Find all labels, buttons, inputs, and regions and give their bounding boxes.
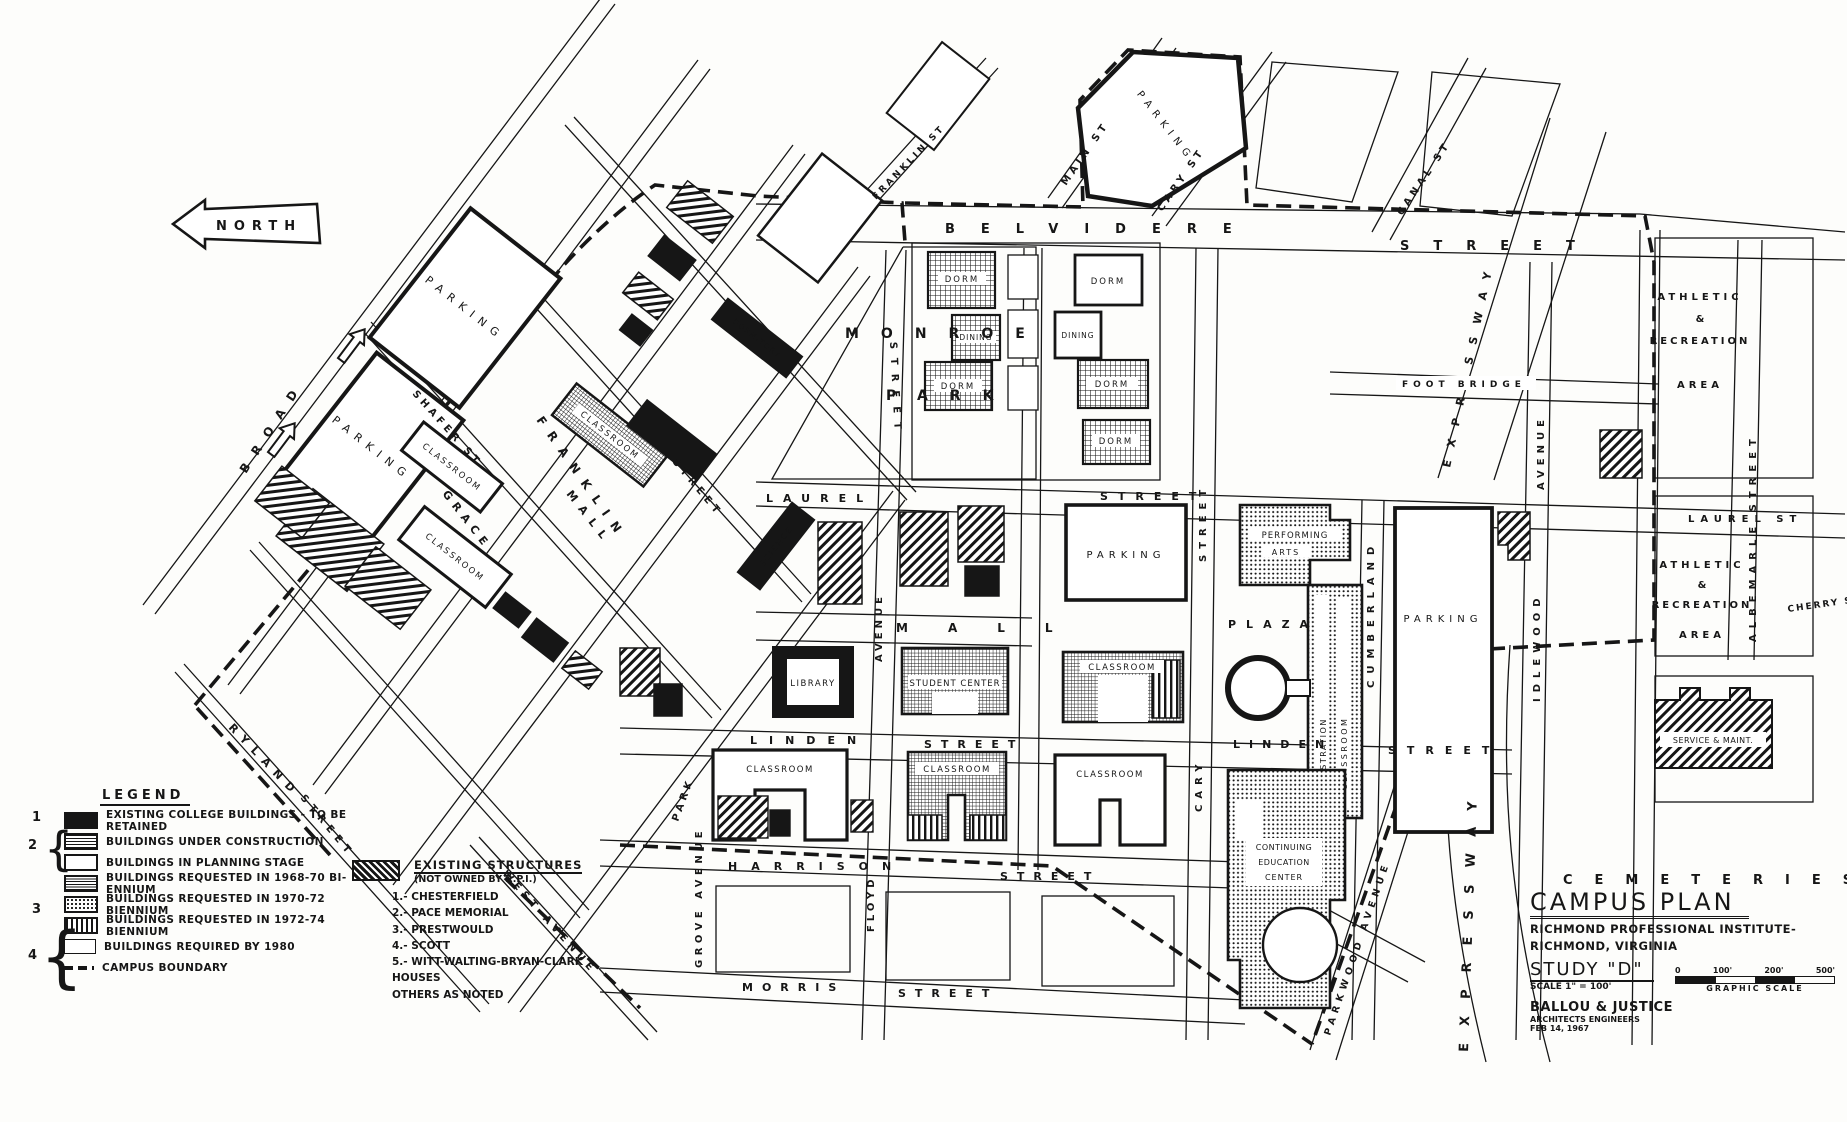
- note-heading: EXISTING STRUCTURES: [414, 858, 582, 874]
- note-item: OTHERS AS NOTED: [392, 987, 612, 1003]
- city-name: RICHMOND, VIRGINIA: [1530, 939, 1842, 953]
- legend-swatch-1970-72: [64, 896, 98, 913]
- classroom-harrison-west: CLASSROOM: [713, 750, 873, 840]
- chesterfield-building: [1498, 512, 1530, 560]
- area-label-plaza: PLAZA: [1228, 618, 1318, 631]
- foot-bridge-label: FOOT BRIDGE: [1396, 376, 1536, 390]
- building-label: DORM: [1099, 437, 1133, 447]
- legend-item: BUILDINGS REQUIRED BY 1980: [64, 936, 360, 957]
- graphic-scale-label: GRAPHIC SCALE: [1675, 984, 1835, 993]
- note-item: 2.- PACE MEMORIAL: [392, 905, 612, 921]
- legend-group-number: 4: [28, 948, 37, 963]
- building-label: CLASSROOM: [1088, 663, 1156, 673]
- street-label: STREET: [1100, 490, 1206, 503]
- area-label-park: PARK: [886, 388, 1015, 404]
- legend-item: EXISTING COLLEGE BUILDINGS - TO BE RETAI…: [64, 810, 360, 831]
- legend-item: BUILDINGS IN PLANNING STAGE: [64, 852, 360, 873]
- street-label: BELVIDERE: [945, 222, 1258, 237]
- street-label: MALL: [896, 621, 1093, 635]
- building-label: CENTER: [1265, 873, 1303, 882]
- performing-arts-building: PERFORMING ARTS: [1240, 505, 1350, 585]
- street-label: CUMBERLAND: [1366, 540, 1377, 688]
- legend-heading: LEGEND: [100, 788, 190, 806]
- plaza-circle: [1228, 658, 1310, 718]
- svg-text:RECREATION: RECREATION: [1650, 336, 1751, 347]
- building-label: EDUCATION: [1258, 858, 1310, 867]
- street-label: GROVE AVENUE: [694, 827, 705, 968]
- svg-text:&: &: [1696, 314, 1705, 325]
- building-label: PARKING: [1404, 614, 1483, 625]
- street-label: EXPRESSWAY: [1440, 258, 1497, 469]
- street-label: STREET: [1388, 744, 1500, 757]
- campus-plan-map: PARKING PARKING CLASSROOM CLASSROOM CLAS…: [0, 0, 1847, 1122]
- svg-text:ATHLETIC: ATHLETIC: [1659, 560, 1744, 571]
- street-label: IDLEWOOD: [1532, 592, 1543, 702]
- legend-swatch-1968-70: [64, 875, 98, 892]
- existing-structures-note: EXISTING STRUCTURES (NOT OWNED BY R.P.I.…: [352, 858, 612, 1003]
- legend-item: BUILDINGS UNDER CONSTRUCTION: [64, 831, 360, 852]
- building-label: CONTINUING: [1256, 843, 1313, 852]
- street-label: LINDEN: [1233, 738, 1333, 751]
- street-label: FLOYD: [866, 875, 877, 932]
- architect-firm: BALLOU & JUSTICE: [1530, 1000, 1842, 1015]
- legend-item: BUILDINGS REQUESTED IN 1972-74 BIENNIUM: [64, 915, 360, 936]
- svg-text:ATHLETIC: ATHLETIC: [1657, 292, 1742, 303]
- plan-title: CAMPUS PLAN: [1530, 888, 1749, 919]
- street-label: STREET: [1198, 484, 1209, 562]
- street-label: LINDEN: [750, 734, 868, 747]
- street-label: CHERRY ST: [1787, 595, 1847, 615]
- street-label: PARK: [670, 776, 696, 823]
- north-arrow: NORTH: [173, 200, 320, 248]
- building-label: CLASSROOM: [746, 765, 814, 775]
- building-label: PERFORMING: [1262, 531, 1329, 541]
- title-block: CAMPUS PLAN RICHMOND PROFESSIONAL INSTIT…: [1530, 888, 1842, 1033]
- science-building: SCIENCE: [736, 501, 815, 590]
- street-label: STREET: [1400, 239, 1599, 254]
- building-label: DORM: [1091, 277, 1125, 287]
- street-label: AVENUE: [874, 593, 885, 662]
- scale-bar: [1675, 976, 1835, 984]
- area-label-cemeteries: CEMETERIES: [1563, 873, 1847, 888]
- legend: LEGEND 1 2 3 4 { { EXISTING COLLEGE BUIL…: [30, 788, 360, 978]
- legend-item: BUILDINGS REQUESTED IN 1970-72 BIENNIUM: [64, 894, 360, 915]
- plan-date: FEB 14, 1967: [1530, 1024, 1842, 1033]
- building-label: DORM: [945, 275, 979, 285]
- svg-text:AREA: AREA: [1679, 630, 1725, 641]
- svg-text:RECREATION: RECREATION: [1652, 600, 1753, 611]
- street-label: STREET: [1000, 870, 1100, 883]
- legend-group-number: 2: [28, 838, 37, 853]
- street-label: CARY: [1194, 759, 1205, 812]
- classroom-center-north: CLASSROOM: [1063, 652, 1183, 722]
- continuing-education-center: CONTINUING EDUCATION CENTER: [1228, 770, 1345, 1008]
- hatch-swatch: [352, 860, 400, 881]
- area-label-monroe: MONROE: [845, 326, 1047, 342]
- note-item: 1.- CHESTERFIELD: [392, 889, 612, 905]
- note-subheading: (NOT OWNED BY R.P.I.): [414, 874, 612, 885]
- building-label: DINING: [1061, 331, 1094, 340]
- note-item: 3.- PRESTWOULD: [392, 922, 612, 938]
- street-label: LAUREL: [766, 492, 873, 505]
- street-label: MORRIS: [742, 981, 845, 994]
- dormitory-building: DORMITORY: [711, 297, 804, 378]
- building-label: DORM: [1095, 380, 1129, 390]
- street-label: AVENUE: [1536, 415, 1547, 490]
- building-label: CLASSROOM: [1076, 770, 1144, 780]
- student-center-building: STUDENT CENTER: [902, 648, 1008, 714]
- street-label: LAUREL ST: [1688, 514, 1802, 525]
- street-label: STREET: [898, 987, 998, 1000]
- service-maintenance-building: SERVICE & MAINT.: [1655, 688, 1772, 768]
- institute-name: RICHMOND PROFESSIONAL INSTITUTE-: [1530, 922, 1842, 936]
- architect-firm-sub: ARCHITECTS ENGINEERS: [1530, 1015, 1842, 1024]
- svg-text:&: &: [1698, 580, 1707, 591]
- north-arrow-label: NORTH: [216, 219, 302, 234]
- building-label: CLASSROOM: [923, 765, 991, 775]
- note-item: 5.- WITT-WALTING-BRYAN-CLARK HOUSES: [392, 954, 612, 987]
- building-label: ARTS: [1272, 548, 1300, 557]
- building-label: PARKING: [1087, 550, 1166, 561]
- street-label: STREET: [924, 738, 1024, 751]
- graphic-scale: 0 100' 200' 500' GRAPHIC SCALE: [1675, 966, 1835, 993]
- legend-group-number: 3: [32, 902, 41, 917]
- classroom-harrison-center: CLASSROOM: [908, 752, 1006, 840]
- parking-center: PARKING: [1066, 505, 1186, 600]
- legend-item: CAMPUS BOUNDARY: [64, 957, 360, 978]
- parking-east: PARKING: [1395, 508, 1492, 832]
- note-item: 4.- SCOTT: [392, 938, 612, 954]
- building-label: STUDENT CENTER: [909, 679, 1000, 689]
- svg-text:AREA: AREA: [1677, 380, 1723, 391]
- classroom-harrison-east: CLASSROOM: [1055, 755, 1165, 845]
- library-building: LIBRARY: [772, 646, 854, 718]
- building-label: SERVICE & MAINT.: [1673, 736, 1753, 745]
- street-label: FRANKLIN ST: [871, 123, 948, 202]
- study-label: STUDY "D": [1530, 959, 1654, 982]
- svg-text:FOOT BRIDGE: FOOT BRIDGE: [1402, 380, 1526, 390]
- street-label: HARRISON: [728, 860, 905, 873]
- building-label: LIBRARY: [790, 679, 836, 689]
- legend-group-number: 1: [32, 810, 41, 825]
- legend-item: BUILDINGS REQUESTED IN 1968-70 BI-ENNIUM: [64, 873, 360, 894]
